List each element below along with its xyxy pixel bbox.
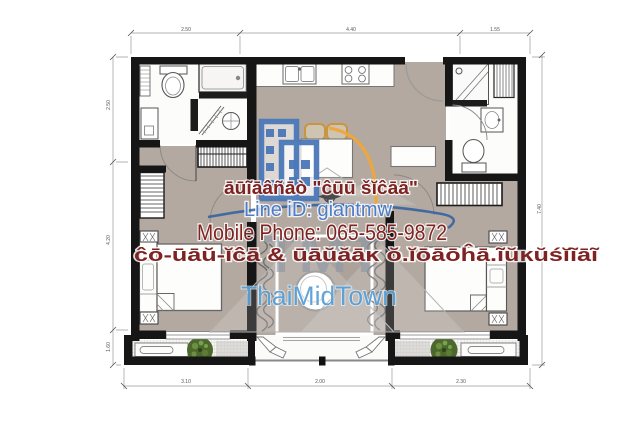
svg-text:Line iD: giantmw: Line iD: giantmw [244,199,393,221]
svg-text:2.00: 2.00 [315,379,325,385]
svg-text:ThaiMidTown: ThaiMidTown [241,281,397,311]
svg-text:4.40: 4.40 [346,27,356,33]
svg-text:ĉō-ūāŭ-ĭĉā & ūāŭăāĸ ŏ.ĭōāōĥā.ĩ: ĉō-ūāŭ-ĭĉā & ūāŭăāĸ ŏ.ĭōāōĥā.ĩŭĸŭśĭĩāĩ [134,243,599,265]
svg-text:4.20: 4.20 [106,235,112,245]
svg-text:1.60: 1.60 [106,342,112,352]
svg-text:1.55: 1.55 [490,27,500,33]
svg-text:āūĩāâñāò "ĉūū šĭĉāā": āūĩāâñāò "ĉūū šĭĉāā" [224,178,418,198]
svg-text:Mobile Phone: 065-585-9872: Mobile Phone: 065-585-9872 [197,220,447,245]
svg-text:2.50: 2.50 [181,27,191,33]
svg-text:7.40: 7.40 [537,204,543,214]
svg-text:3.10: 3.10 [181,379,191,385]
svg-text:2.50: 2.50 [106,100,112,110]
svg-text:2.30: 2.30 [456,379,466,385]
